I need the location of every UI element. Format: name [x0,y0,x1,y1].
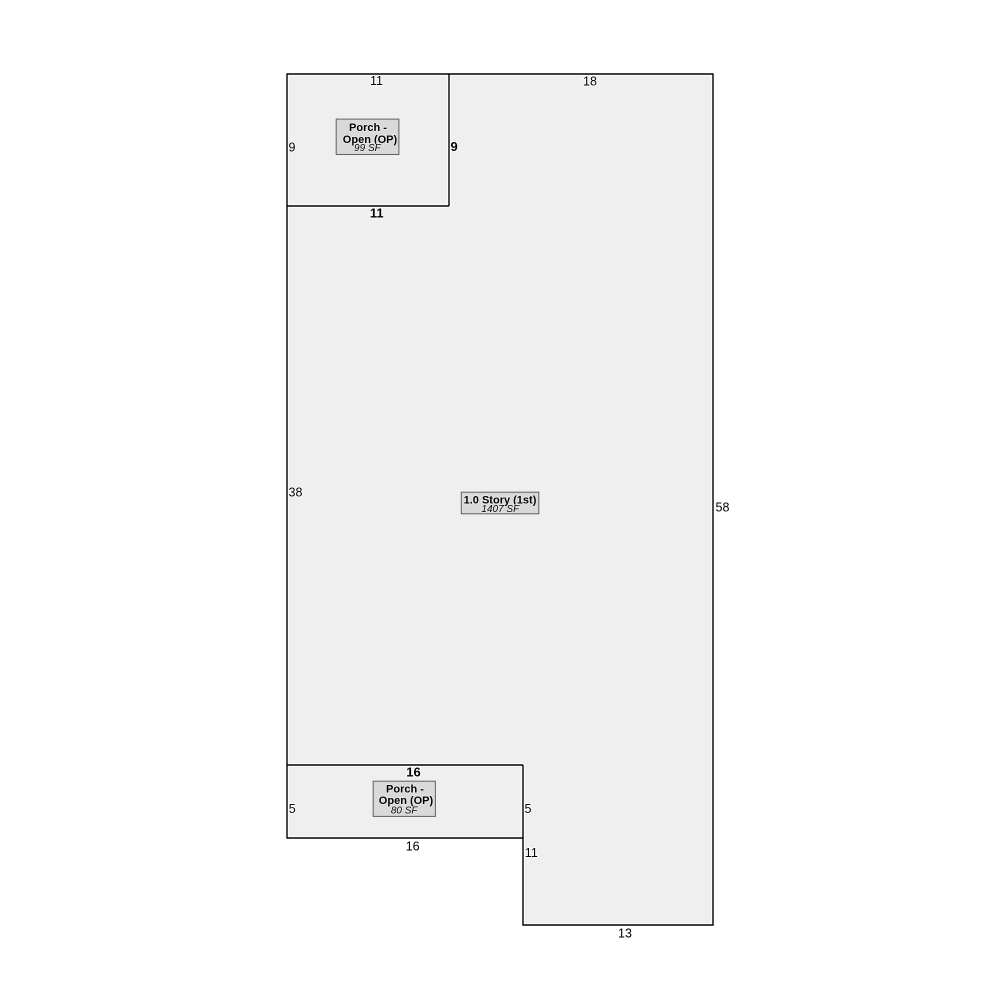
svg-text:1407 SF: 1407 SF [481,504,520,515]
svg-text:99 SF: 99 SF [354,143,382,154]
svg-text:11: 11 [525,846,538,860]
svg-text:5: 5 [289,802,296,816]
svg-text:80 SF: 80 SF [391,805,419,816]
svg-text:13: 13 [618,927,632,941]
svg-text:58: 58 [716,501,730,515]
svg-text:11: 11 [370,205,384,220]
svg-text:18: 18 [583,75,597,89]
svg-text:Porch -: Porch - [386,784,424,796]
svg-text:5: 5 [525,802,532,816]
svg-text:9: 9 [451,139,458,154]
svg-text:16: 16 [406,765,420,780]
svg-text:16: 16 [406,840,420,854]
svg-text:Porch -: Porch - [349,122,387,134]
svg-text:9: 9 [289,140,296,154]
svg-text:11: 11 [370,74,383,88]
svg-text:38: 38 [289,486,303,500]
